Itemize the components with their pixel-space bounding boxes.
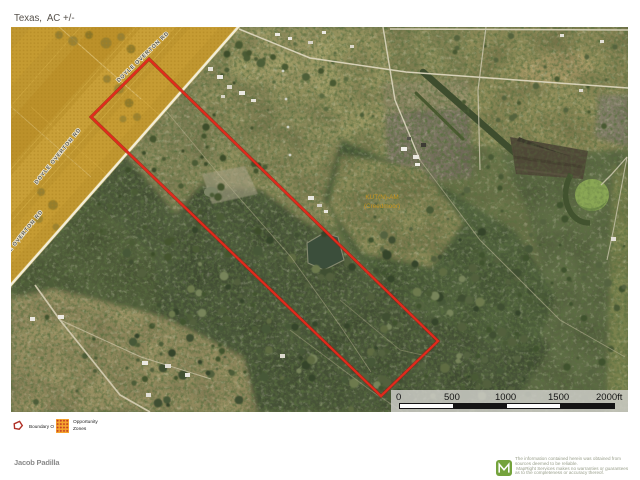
svg-text:(Creedmoor): (Creedmoor) [364, 203, 400, 210]
svg-text:KUT(N)-AM: KUT(N)-AM [365, 194, 398, 201]
